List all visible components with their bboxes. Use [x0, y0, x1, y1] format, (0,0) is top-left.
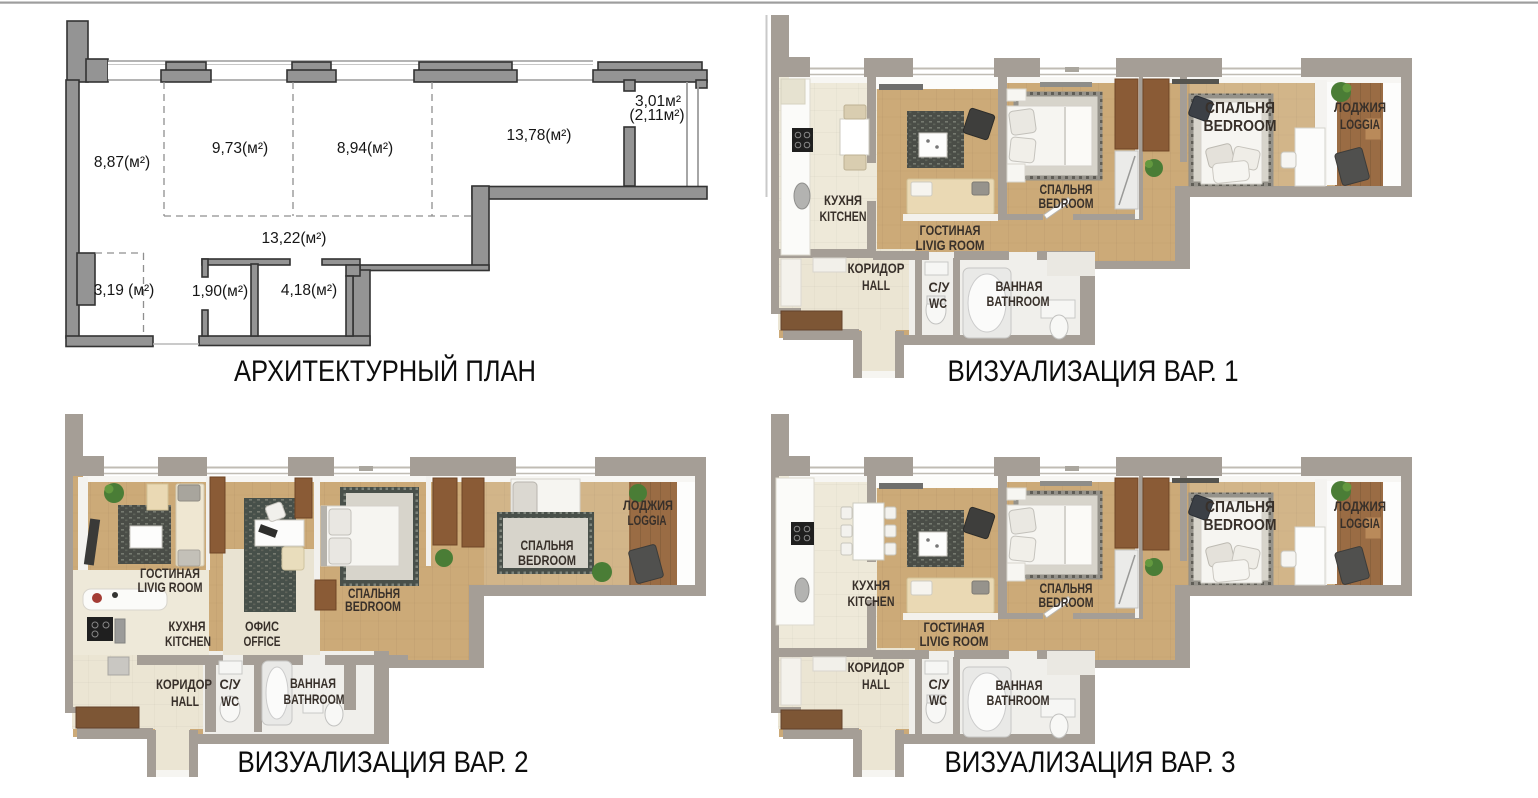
svg-text:BEDROOM: BEDROOM — [518, 552, 576, 568]
svg-text:13,78(м²): 13,78(м²) — [507, 127, 572, 144]
svg-text:BEDROOM: BEDROOM — [1039, 594, 1094, 610]
svg-text:КОРИДОР: КОРИДОР — [848, 260, 905, 276]
svg-text:СПАЛЬНЯ: СПАЛЬНЯ — [1205, 499, 1275, 516]
svg-text:BEDROOM: BEDROOM — [1204, 118, 1277, 135]
svg-text:ВИЗУАЛИЗАЦИЯ ВАР. 3: ВИЗУАЛИЗАЦИЯ ВАР. 3 — [945, 746, 1236, 779]
svg-text:HALL: HALL — [862, 676, 890, 692]
svg-text:С/У: С/У — [929, 279, 950, 295]
svg-text:КОРИДОР: КОРИДОР — [848, 659, 905, 675]
svg-text:ВАННАЯ: ВАННАЯ — [996, 278, 1043, 294]
svg-text:ОФИС: ОФИС — [245, 618, 279, 634]
svg-text:BATHROOM: BATHROOM — [284, 691, 345, 707]
svg-text:8,94(м²): 8,94(м²) — [337, 140, 393, 157]
svg-text:СПАЛЬНЯ: СПАЛЬНЯ — [1205, 100, 1275, 117]
svg-text:ВАННАЯ: ВАННАЯ — [290, 675, 336, 691]
svg-text:LOGGIA: LOGGIA — [1340, 516, 1380, 531]
svg-text:13,22(м²): 13,22(м²) — [262, 230, 327, 247]
svg-text:HALL: HALL — [862, 277, 890, 293]
svg-text:ЛОДЖИЯ: ЛОДЖИЯ — [1334, 499, 1386, 514]
svg-text:BEDROOM: BEDROOM — [1039, 195, 1094, 211]
svg-text:LIVIG ROOM: LIVIG ROOM — [916, 237, 985, 253]
svg-text:BATHROOM: BATHROOM — [987, 293, 1050, 309]
svg-text:ЛОДЖИЯ: ЛОДЖИЯ — [1334, 100, 1386, 115]
svg-text:KITCHEN: KITCHEN — [165, 633, 211, 649]
svg-text:КОРИДОР: КОРИДОР — [156, 676, 212, 692]
svg-text:LIVIG ROOM: LIVIG ROOM — [138, 579, 203, 595]
svg-text:BEDROOM: BEDROOM — [1204, 517, 1277, 534]
svg-text:(2,11м²): (2,11м²) — [629, 107, 684, 124]
svg-text:ЛОДЖИЯ: ЛОДЖИЯ — [623, 498, 673, 513]
svg-text:HALL: HALL — [171, 693, 199, 709]
svg-text:4,18(м²): 4,18(м²) — [281, 282, 337, 299]
svg-text:ВАННАЯ: ВАННАЯ — [996, 677, 1043, 693]
svg-text:КУХНЯ: КУХНЯ — [852, 577, 890, 593]
svg-text:BATHROOM: BATHROOM — [987, 692, 1050, 708]
svg-text:С/У: С/У — [929, 676, 950, 692]
svg-text:3,19 (м²): 3,19 (м²) — [94, 282, 155, 299]
svg-text:LIVIG ROOM: LIVIG ROOM — [920, 633, 989, 649]
svg-text:WC: WC — [221, 693, 239, 709]
svg-text:9,73(м²): 9,73(м²) — [212, 140, 268, 157]
svg-text:ВИЗУАЛИЗАЦИЯ ВАР. 1: ВИЗУАЛИЗАЦИЯ ВАР. 1 — [948, 355, 1239, 388]
svg-text:ГОСТИНАЯ: ГОСТИНАЯ — [920, 222, 981, 238]
svg-text:LOGGIA: LOGGIA — [628, 513, 667, 528]
svg-text:KITCHEN: KITCHEN — [820, 208, 867, 224]
svg-text:С/У: С/У — [220, 676, 241, 692]
svg-text:LOGGIA: LOGGIA — [1340, 117, 1380, 132]
svg-text:КУХНЯ: КУХНЯ — [169, 618, 206, 634]
svg-text:СПАЛЬНЯ: СПАЛЬНЯ — [521, 537, 574, 553]
svg-text:KITCHEN: KITCHEN — [848, 593, 895, 609]
svg-text:WC: WC — [929, 295, 947, 311]
svg-text:ВИЗУАЛИЗАЦИЯ ВАР. 2: ВИЗУАЛИЗАЦИЯ ВАР. 2 — [238, 746, 529, 779]
svg-text:1,90(м²): 1,90(м²) — [192, 283, 248, 300]
svg-text:8,87(м²): 8,87(м²) — [94, 154, 150, 171]
svg-text:BEDROOM: BEDROOM — [345, 598, 401, 614]
svg-text:WC: WC — [929, 692, 947, 708]
svg-text:КУХНЯ: КУХНЯ — [824, 192, 862, 208]
svg-text:АРХИТЕКТУРНЫЙ ПЛАН: АРХИТЕКТУРНЫЙ ПЛАН — [234, 354, 536, 388]
svg-text:OFFICE: OFFICE — [244, 633, 281, 649]
